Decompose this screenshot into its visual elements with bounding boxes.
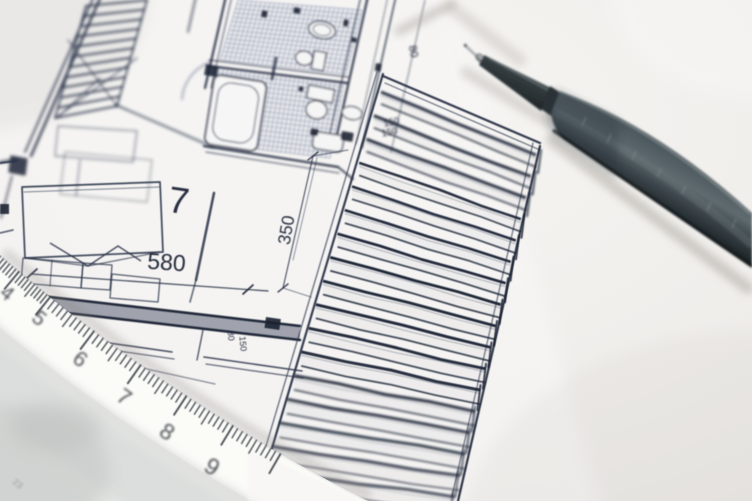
- svg-text:150: 150: [237, 336, 248, 352]
- svg-text:80: 80: [406, 44, 420, 58]
- svg-text:580: 580: [147, 248, 187, 277]
- svg-text:80: 80: [226, 330, 237, 341]
